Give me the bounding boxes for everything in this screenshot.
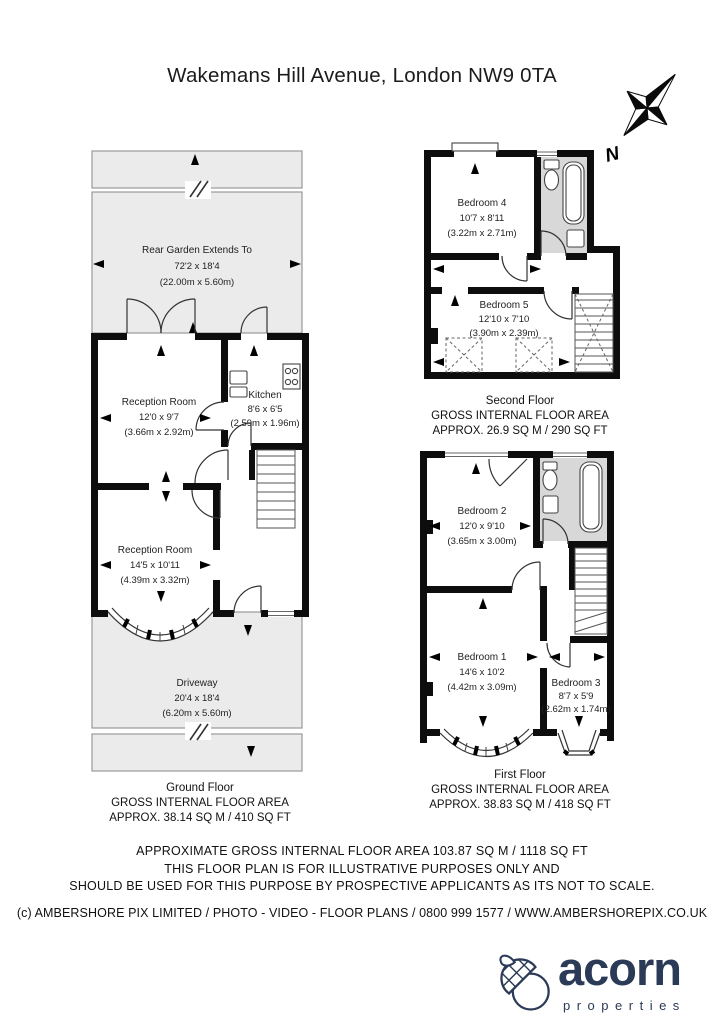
- reception2-arrow-left: [100, 561, 111, 569]
- svg-text:(3.90m x 2.39m): (3.90m x 2.39m): [469, 328, 538, 339]
- second-floor-plan: Bedroom 4 10'7 x 8'11 (3.22m x 2.71m) Be…: [424, 142, 620, 392]
- logo-tagline-text: properties: [563, 998, 686, 1013]
- reception1-door-arrow: [157, 345, 165, 356]
- toilet-first: [543, 462, 557, 490]
- bedroom1-arrow-left: [429, 653, 440, 661]
- svg-text:12'0 x 9'7: 12'0 x 9'7: [139, 412, 179, 423]
- kitchen-stove: [283, 364, 300, 389]
- second-floor-area-value: APPROX. 26.9 SQ M / 290 SQ FT: [400, 424, 640, 439]
- svg-text:Bedroom 1: Bedroom 1: [458, 652, 507, 663]
- svg-text:Rear Garden Extends To: Rear Garden Extends To: [142, 245, 252, 256]
- svg-text:(4.39m x 3.32m): (4.39m x 3.32m): [120, 575, 189, 586]
- ground-floor-stairs: [257, 450, 295, 528]
- bedroom5-opening-arrow: [451, 295, 459, 306]
- bedroom-2-label: Bedroom 2 12'0 x 9'10 (3.65m x 3.00m): [447, 506, 516, 547]
- ground-floor-area-label: GROSS INTERNAL FLOOR AREA: [91, 796, 309, 811]
- bedroom1-opening-arrow: [479, 598, 487, 609]
- landing-arrow-right: [530, 265, 541, 273]
- first-floor-caption: First Floor GROSS INTERNAL FLOOR AREA AP…: [400, 768, 640, 813]
- hall-door: [195, 450, 228, 483]
- bathtub-first: [580, 462, 602, 532]
- svg-text:(2.62m x 1.74m): (2.62m x 1.74m): [541, 704, 610, 715]
- first-floor-name: First Floor: [400, 768, 640, 783]
- reception-opening-arrow-down: [162, 491, 170, 502]
- bedroom3-bay-arrow: [575, 716, 583, 727]
- landing-arrow-left: [433, 265, 444, 273]
- bedroom4-window-arrow: [471, 163, 479, 174]
- logo-brand-text: acorn: [558, 941, 681, 996]
- front-entrance-door: [234, 586, 261, 613]
- svg-text:8'6 x 6'5: 8'6 x 6'5: [248, 404, 283, 415]
- svg-text:(4.42m x 3.09m): (4.42m x 3.09m): [447, 682, 516, 693]
- second-floor-stairs: [575, 294, 613, 372]
- reception-room-1-label: Reception Room 12'0 x 9'7 (3.66m x 2.92m…: [122, 397, 196, 438]
- svg-text:Kitchen: Kitchen: [248, 390, 281, 401]
- svg-text:Bedroom 5: Bedroom 5: [480, 300, 529, 311]
- svg-text:(2.59m x 1.96m): (2.59m x 1.96m): [230, 418, 299, 429]
- disclaimer-line3: SHOULD BE USED FOR THIS PURPOSE BY PROSP…: [0, 878, 724, 896]
- dormer-window: [452, 143, 498, 157]
- bedroom2-arrow-right: [520, 522, 531, 530]
- bedroom1-arrow-right: [527, 653, 538, 661]
- svg-text:20'4 x 18'4: 20'4 x 18'4: [174, 693, 219, 704]
- bedroom2-rear-door: [512, 562, 540, 590]
- reception-opening-arrow-up: [162, 471, 170, 482]
- svg-text:(3.66m x 2.92m): (3.66m x 2.92m): [124, 427, 193, 438]
- bedroom-1-label: Bedroom 1 14'6 x 10'2 (4.42m x 3.09m): [447, 652, 516, 693]
- reception1-arrow-left: [100, 414, 111, 422]
- bay-window-bedroom3: [557, 730, 601, 757]
- second-floor-name: Second Floor: [400, 394, 640, 409]
- bedroom-5-label: Bedroom 5 12'10 x 7'10 (3.90m x 2.39m): [469, 300, 538, 339]
- first-floor-stairs: [575, 548, 607, 634]
- disclaimer-line2: THIS FLOOR PLAN IS FOR ILLUSTRATIVE PURP…: [0, 861, 724, 879]
- copyright-line: (c) AMBERSHORE PIX LIMITED / PHOTO - VID…: [0, 906, 724, 920]
- svg-text:10'7 x 8'11: 10'7 x 8'11: [460, 213, 505, 224]
- svg-text:Reception Room: Reception Room: [118, 545, 192, 556]
- svg-text:Bedroom 2: Bedroom 2: [458, 506, 507, 517]
- svg-text:72'2 x 18'4: 72'2 x 18'4: [174, 261, 219, 272]
- bedroom-4-label: Bedroom 4 10'7 x 8'11 (3.22m x 2.71m): [447, 198, 516, 239]
- bedroom5-door: [544, 291, 572, 319]
- driveway-break-mark: [185, 722, 211, 740]
- ground-floor-caption: Ground Floor GROSS INTERNAL FLOOR AREA A…: [91, 781, 309, 826]
- bedroom5-arrow-right: [559, 358, 570, 366]
- svg-text:Bedroom 4: Bedroom 4: [458, 198, 507, 209]
- bedroom5-arrow-left: [433, 358, 444, 366]
- svg-text:12'0 x 9'10: 12'0 x 9'10: [459, 521, 504, 532]
- svg-text:(22.00m x 5.60m): (22.00m x 5.60m): [160, 277, 234, 288]
- kitchen-sink: [230, 371, 247, 397]
- toilet: [544, 160, 559, 190]
- bedroom2-entry-door: [489, 459, 527, 486]
- reception2-arrow-right: [200, 561, 211, 569]
- first-bathroom-window: [553, 452, 587, 458]
- second-floor-area-label: GROSS INTERNAL FLOOR AREA: [400, 409, 640, 424]
- reception1-arrow-right: [200, 414, 211, 422]
- disclaimer: APPROXIMATE GROSS INTERNAL FLOOR AREA 10…: [0, 843, 724, 896]
- bedroom1-bay-arrow: [479, 716, 487, 727]
- svg-text:Reception Room: Reception Room: [122, 397, 196, 408]
- svg-text:Driveway: Driveway: [176, 678, 217, 689]
- bedroom3-arrow-right: [594, 653, 605, 661]
- acorn-logo-icon: [492, 950, 560, 1018]
- svg-text:8'7 x 5'9: 8'7 x 5'9: [559, 691, 594, 702]
- reception-room-2-label: Reception Room 14'5 x 10'11 (4.39m x 3.3…: [118, 545, 192, 586]
- svg-text:14'6 x 10'2: 14'6 x 10'2: [459, 667, 504, 678]
- ground-floor-name: Ground Floor: [91, 781, 309, 796]
- sink-first: [543, 496, 558, 513]
- reception2-bay-arrow: [157, 591, 165, 602]
- bathroom-window: [537, 151, 557, 157]
- floorplan-page: Wakemans Hill Avenue, London NW9 0TA N: [0, 0, 724, 1024]
- ground-floor-area-value: APPROX. 38.14 SQ M / 410 SQ FT: [91, 811, 309, 826]
- garden-break-mark: [185, 181, 211, 199]
- bedroom2-window: [445, 452, 508, 458]
- svg-text:(3.65m x 3.00m): (3.65m x 3.00m): [447, 536, 516, 547]
- kitchen-door-arrow: [250, 345, 258, 356]
- svg-text:14'5 x 10'11: 14'5 x 10'11: [130, 560, 180, 571]
- bathroom-sink: [567, 230, 584, 247]
- svg-text:(6.20m x 5.60m): (6.20m x 5.60m): [162, 708, 231, 719]
- bay-window-bedroom1: [438, 729, 535, 757]
- bathtub: [563, 162, 584, 224]
- first-floor-area-value: APPROX. 38.83 SQ M / 418 SQ FT: [400, 798, 640, 813]
- svg-text:12'10 x 7'10: 12'10 x 7'10: [479, 314, 530, 325]
- bedroom4-door: [502, 256, 527, 281]
- disclaimer-line1: APPROXIMATE GROSS INTERNAL FLOOR AREA 10…: [0, 843, 724, 861]
- bedroom2-window-arrow: [472, 463, 480, 474]
- second-floor-caption: Second Floor GROSS INTERNAL FLOOR AREA A…: [400, 394, 640, 439]
- first-floor-area-label: GROSS INTERNAL FLOOR AREA: [400, 783, 640, 798]
- ground-floor-plan: Rear Garden Extends To 72'2 x 18'4 (22.0…: [91, 150, 309, 775]
- first-floor-plan: Bedroom 2 12'0 x 9'10 (3.65m x 3.00m) Be…: [420, 446, 620, 772]
- eaves-storage-right: [516, 338, 552, 372]
- front-window: [268, 610, 294, 617]
- svg-text:Bedroom 3: Bedroom 3: [552, 678, 601, 689]
- svg-text:(3.22m x 2.71m): (3.22m x 2.71m): [447, 228, 516, 239]
- bedroom-3-label: Bedroom 3 8'7 x 5'9 (2.62m x 1.74m): [541, 678, 610, 715]
- eaves-storage-left: [446, 338, 482, 372]
